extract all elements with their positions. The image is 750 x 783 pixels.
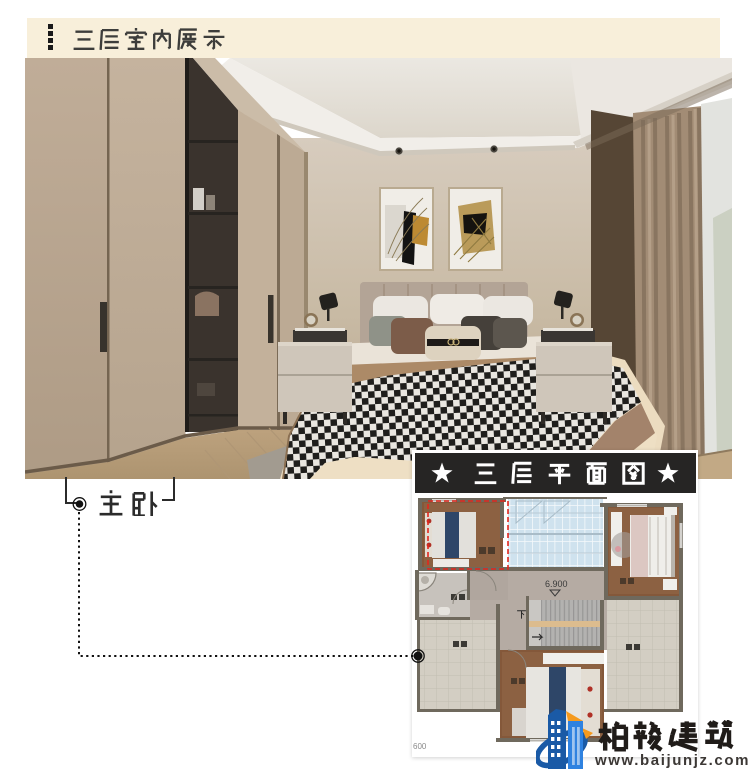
svg-text:600: 600 [413, 742, 427, 751]
svg-text:6.900: 6.900 [545, 579, 568, 589]
